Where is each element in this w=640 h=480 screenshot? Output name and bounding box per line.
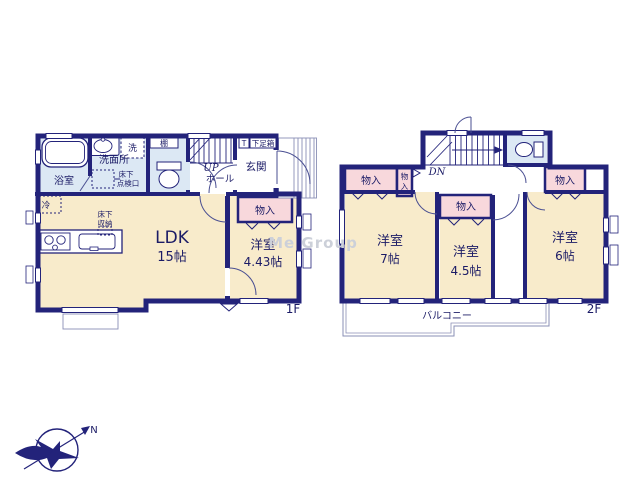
label-room7: 洋室 <box>377 233 403 249</box>
label-f2-closet-small-2: 入 <box>401 182 409 191</box>
compass-bird-icon <box>15 439 79 469</box>
label-bath: 浴室 <box>54 174 74 187</box>
label-floor-storage-1: 床下 <box>98 209 113 219</box>
f1-entrance-porch <box>279 138 317 198</box>
label-room7-size: 7帖 <box>380 251 400 266</box>
label-fridge: 冷 <box>42 200 51 211</box>
f1-washbasin <box>90 137 119 156</box>
f1-deck <box>63 314 118 329</box>
label-inspection-hatch-1: 床下 <box>119 169 134 179</box>
floor-1-plan: 浴室 洗面所 洗 床下 点検口 棚 UP ホール T 下足箱 玄関 物入 冷 床… <box>26 134 317 330</box>
f1-bathtub <box>42 138 88 167</box>
f1-kitchen-counter <box>38 230 122 253</box>
f1-toilet <box>157 162 181 188</box>
f2-room6-floor <box>527 192 606 301</box>
label-stairs-down: DN <box>428 167 447 178</box>
watermark-text: Me Group <box>268 234 358 252</box>
compass-north-label: N <box>90 425 97 436</box>
compass: N <box>15 425 98 471</box>
label-shoebox: 下足箱 <box>252 138 275 148</box>
label-inspection-hatch-2: 点検口 <box>117 178 140 188</box>
label-washer: 洗 <box>128 142 137 154</box>
label-hall: ホール <box>206 174 235 185</box>
label-shelf: 棚 <box>160 138 168 148</box>
floorplan-page: 浴室 洗面所 洗 床下 点検口 棚 UP ホール T 下足箱 玄関 物入 冷 床… <box>0 0 640 480</box>
label-f2-closet-left: 物入 <box>361 174 381 187</box>
label-shoe-t: T <box>241 139 247 148</box>
label-entrance: 玄関 <box>246 160 267 173</box>
label-room45: 洋室 <box>453 244 479 260</box>
label-floor-1f: 1F <box>286 302 301 316</box>
label-balcony: バルコニー <box>422 310 472 322</box>
floor-2-plan: DN 物入 物 入 物入 物入 洋室 7帖 洋室 4.5帖 洋室 6帖 バルコニ… <box>340 117 619 336</box>
label-ldk-size: 15帖 <box>157 250 187 265</box>
f2-toilet <box>516 142 544 157</box>
floorplan-drawing: 浴室 洗面所 洗 床下 点検口 棚 UP ホール T 下足箱 玄関 物入 冷 床… <box>0 0 640 480</box>
label-f1-bedroom-size: 4.43帖 <box>244 254 283 269</box>
label-washroom: 洗面所 <box>99 154 129 166</box>
label-f2-closet-mid: 物入 <box>456 200 476 213</box>
label-room6-size: 6帖 <box>555 248 575 263</box>
label-floor-2f: 2F <box>587 302 602 316</box>
label-f2-closet-small-1: 物 <box>401 171 409 181</box>
label-room45-size: 4.5帖 <box>450 263 481 278</box>
label-stairs-up: UP <box>203 163 218 174</box>
label-f2-closet-right: 物入 <box>555 174 575 187</box>
label-room6: 洋室 <box>552 230 578 246</box>
label-f1-closet: 物入 <box>255 204 275 217</box>
label-floor-storage-2: 収納 <box>98 218 113 228</box>
label-ldk: LDK <box>155 228 190 248</box>
